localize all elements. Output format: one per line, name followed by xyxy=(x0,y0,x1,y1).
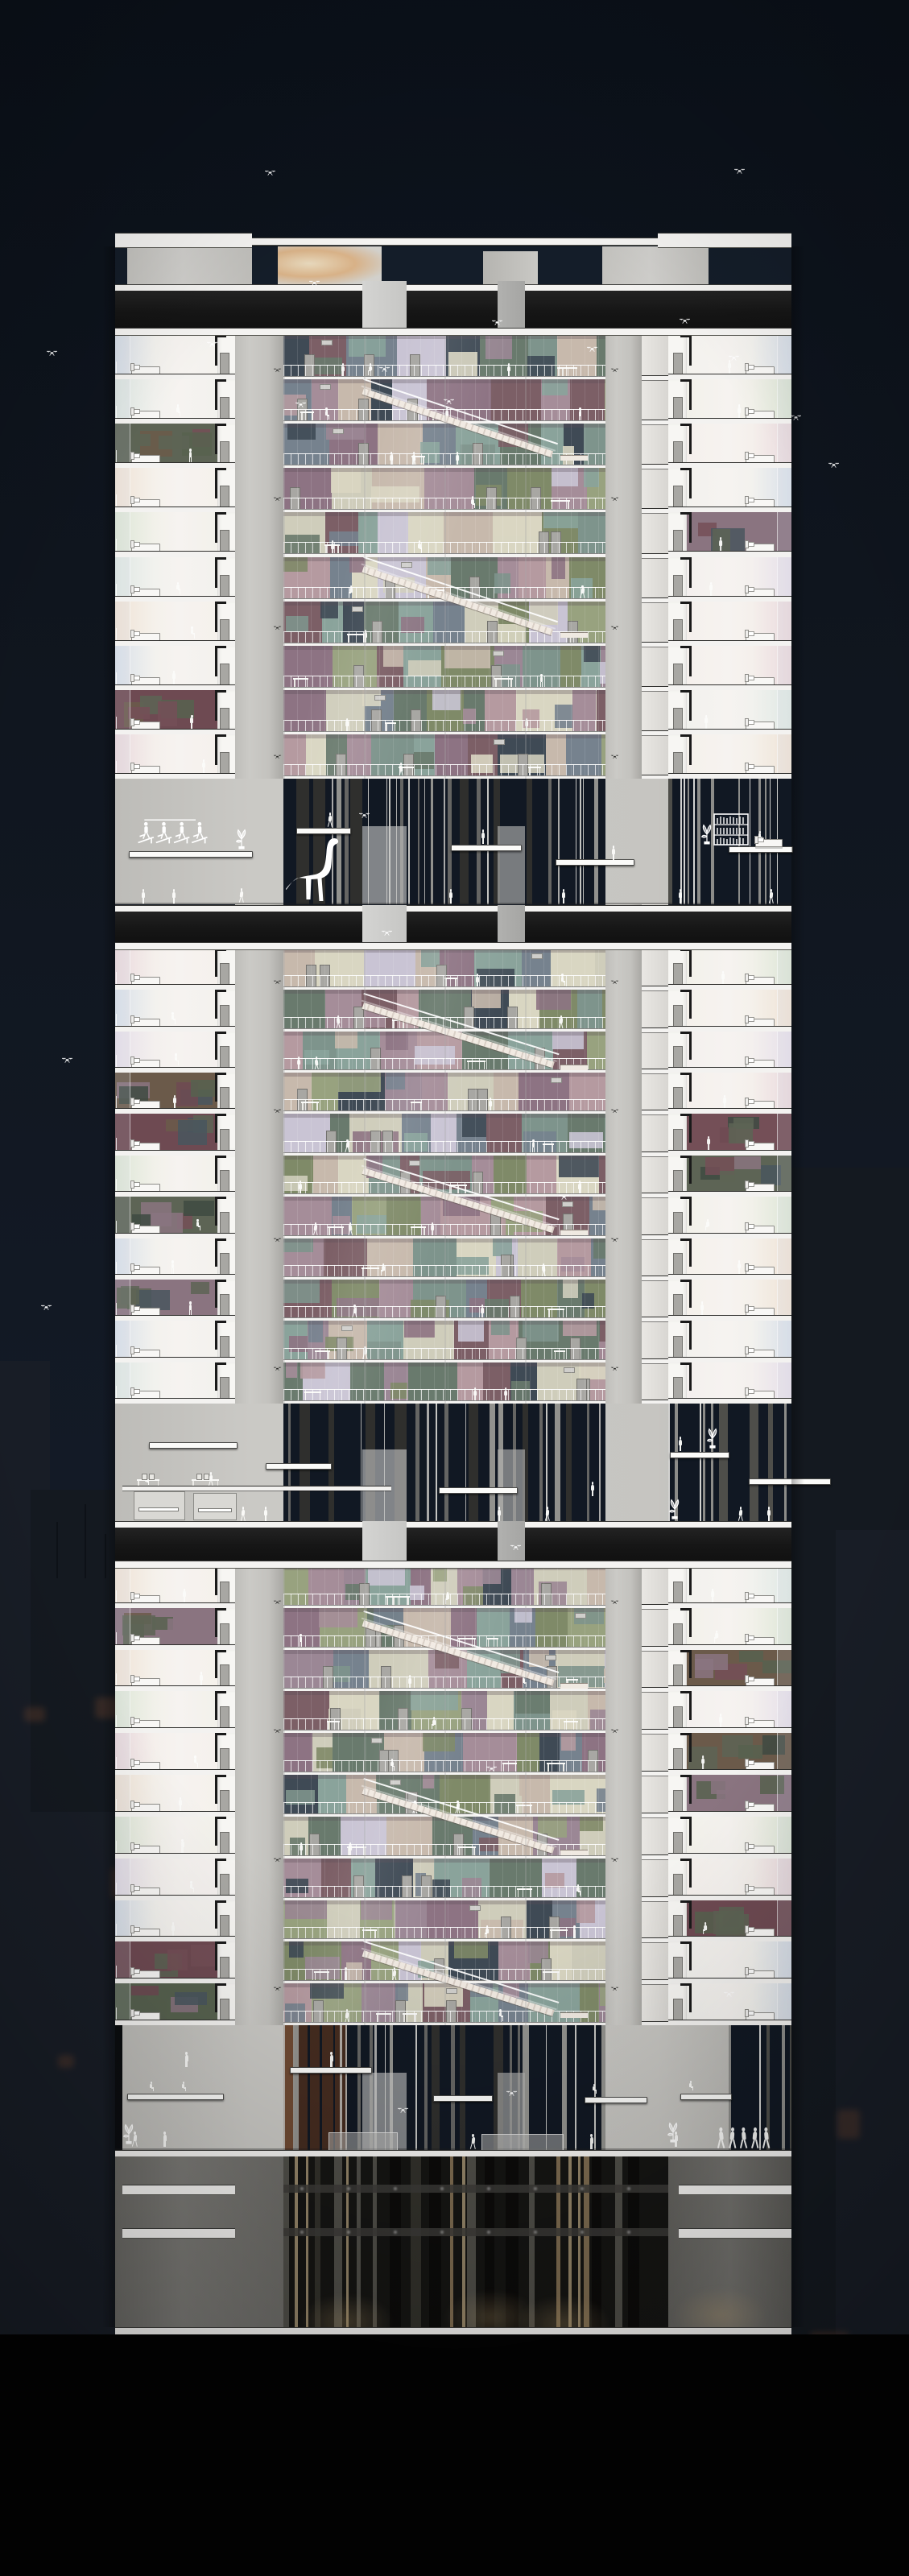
ceiling-strip xyxy=(283,1775,605,1779)
basement xyxy=(115,2156,791,2327)
mullion-stripe xyxy=(583,779,585,904)
section-cut-mark xyxy=(680,734,692,737)
mullion-stripe xyxy=(562,2025,567,2150)
ceiling-strip xyxy=(283,734,605,738)
drone-black-icon xyxy=(274,1725,281,1730)
mullion-stripe xyxy=(784,1404,787,1524)
closet-door xyxy=(220,1212,229,1234)
closet-door xyxy=(673,1623,683,1646)
beam-light xyxy=(581,2231,584,2234)
balcony-glass xyxy=(115,335,130,374)
basement-stub-slab xyxy=(679,2185,791,2195)
closet-door xyxy=(220,1253,229,1276)
left-wing xyxy=(115,335,235,779)
mullion-stripe xyxy=(418,779,419,904)
ac-unit xyxy=(551,1077,562,1083)
section-cut-mark xyxy=(215,1691,217,1720)
apartment-room xyxy=(115,949,235,990)
bed-headboard xyxy=(130,1592,134,1600)
person-figure-icon xyxy=(188,1881,193,1895)
drone-icon xyxy=(295,396,306,403)
bed-headboard xyxy=(745,452,749,460)
person-figure-icon xyxy=(727,360,732,374)
beam-light xyxy=(534,2187,537,2190)
closet-door xyxy=(220,441,229,464)
closet-door xyxy=(220,1748,229,1771)
room-interior xyxy=(686,557,791,596)
mechanical-band xyxy=(115,1528,791,1561)
atrium-level xyxy=(283,1280,605,1321)
balcony-railing-line xyxy=(283,2011,605,2023)
mullion-stripe xyxy=(340,2025,341,2150)
closet-door xyxy=(220,1129,229,1152)
person-leg xyxy=(193,1888,194,1892)
balcony-railing xyxy=(116,672,117,684)
mullion-stripe xyxy=(411,2156,421,2327)
section-cut-mark xyxy=(680,990,692,992)
closet-door xyxy=(673,1874,683,1896)
balcony-railing-line xyxy=(283,542,605,554)
person-leg xyxy=(204,767,205,773)
section-cut-mark xyxy=(215,1197,226,1199)
stair-landing xyxy=(560,455,588,461)
balcony-railing xyxy=(116,1386,117,1398)
tower-edge-shadow xyxy=(791,246,804,2327)
section-cut-mark xyxy=(215,1321,226,1323)
closet-door xyxy=(673,530,683,552)
closet-door xyxy=(673,1129,683,1152)
section-cut-mark xyxy=(689,1733,692,1762)
mullion-stripe xyxy=(337,779,341,904)
floor-slab xyxy=(668,2020,791,2025)
ceiling-strip xyxy=(283,690,605,694)
section-cut-mark xyxy=(215,1983,226,1986)
city-window-glow xyxy=(837,2110,860,2139)
person-leg xyxy=(739,1268,740,1274)
wall-panel xyxy=(695,1659,713,1677)
balcony-glass xyxy=(777,949,791,984)
section-cut-mark xyxy=(215,602,217,632)
section-cut-mark xyxy=(680,1733,692,1735)
person-leg xyxy=(711,589,712,595)
bed-headboard xyxy=(745,1387,749,1396)
balcony-railing xyxy=(116,406,117,418)
apartment-room xyxy=(668,1650,791,1692)
beam-light xyxy=(300,2231,304,2234)
section-cut-mark xyxy=(689,1775,692,1804)
balcony-glass xyxy=(115,602,130,640)
person-leg xyxy=(178,1061,179,1065)
balcony-railing-line xyxy=(283,1718,605,1730)
ceiling-strip xyxy=(283,1073,605,1077)
section-cut-mark xyxy=(689,1197,692,1225)
mullion-stripe xyxy=(431,779,433,904)
mullion-stripe xyxy=(415,1404,419,1524)
apartment-room xyxy=(668,424,791,468)
ac-unit xyxy=(446,1988,457,1994)
mullion-stripe xyxy=(451,2025,455,2150)
wall-panel xyxy=(131,1986,159,1996)
drone-icon xyxy=(729,349,739,356)
room-interior xyxy=(686,1321,791,1356)
balcony-railing-line xyxy=(283,1224,605,1236)
person-leg xyxy=(730,368,731,374)
balcony-glass xyxy=(777,1983,791,2020)
balcony-glass xyxy=(115,1238,130,1274)
bed-headboard xyxy=(130,674,134,682)
section-cut-mark xyxy=(215,1608,217,1637)
apartment-room xyxy=(668,1775,791,1817)
drone-black-icon xyxy=(274,1983,281,1987)
beam-light xyxy=(627,2231,630,2234)
mullion-stripe xyxy=(688,779,690,904)
person-figure-icon xyxy=(171,671,176,684)
balcony-glass xyxy=(777,1114,791,1149)
person-figure-icon xyxy=(714,1631,719,1644)
drone-icon xyxy=(207,336,217,342)
section-cut-mark xyxy=(689,1032,692,1060)
mechanical-band xyxy=(115,912,791,942)
balcony-railing xyxy=(116,1055,117,1067)
section-cut-mark xyxy=(680,1073,692,1075)
section-cut-mark xyxy=(215,1733,226,1735)
person-leg xyxy=(702,1309,703,1315)
balcony-railing xyxy=(116,1138,117,1150)
section-cut-mark xyxy=(215,646,226,648)
drone-black-icon xyxy=(611,1234,618,1238)
break-void xyxy=(283,2025,605,2150)
ceiling-strip xyxy=(283,1733,605,1737)
closet-door xyxy=(673,1336,683,1358)
bed-headboard xyxy=(130,1056,134,1065)
room-interior xyxy=(686,1691,791,1727)
closet-door xyxy=(220,752,229,775)
ceiling-strip xyxy=(283,1362,605,1367)
drone-icon xyxy=(734,163,745,169)
apartment-room xyxy=(668,512,791,556)
apartment-room xyxy=(668,1733,791,1775)
section-cut-mark xyxy=(215,1900,226,1903)
apartment-room xyxy=(668,1073,791,1114)
closet-door xyxy=(673,963,683,986)
break-void xyxy=(283,1404,605,1524)
person-figure-icon xyxy=(171,1260,176,1274)
bed-headboard xyxy=(130,452,134,460)
wall-panel xyxy=(184,1201,214,1216)
drone-icon xyxy=(47,345,57,351)
person-figure-icon xyxy=(710,1589,715,1602)
apartment-room xyxy=(115,602,235,646)
bed-headboard xyxy=(130,1717,134,1725)
bed-headboard xyxy=(130,1675,134,1683)
mullion-stripe xyxy=(668,779,672,904)
bed-headboard xyxy=(130,540,134,548)
section-cut-mark xyxy=(215,379,217,410)
closet-door xyxy=(220,1999,229,2021)
atrium-level xyxy=(283,1900,605,1942)
ceiling-strip xyxy=(283,468,605,472)
mullion-stripe xyxy=(429,2156,441,2327)
drone-black-icon xyxy=(611,976,618,981)
closet-door xyxy=(220,530,229,552)
mullion-stripe xyxy=(768,1404,772,1524)
bed-headboard xyxy=(745,630,749,638)
section-cut-mark xyxy=(215,1032,217,1060)
closet-door xyxy=(220,1170,229,1193)
right-wing xyxy=(668,335,791,779)
balcony-glass xyxy=(777,1197,791,1232)
mullion-stripe xyxy=(283,2025,285,2150)
balcony-glass xyxy=(777,1073,791,1108)
mullion-stripe xyxy=(527,779,533,904)
balcony-railing xyxy=(116,1632,117,1644)
beam-light xyxy=(534,2231,537,2234)
ac-unit xyxy=(390,1780,401,1785)
balcony-glass xyxy=(777,1941,791,1978)
person-leg xyxy=(706,723,707,729)
closet-door xyxy=(673,1170,683,1193)
apartment-room xyxy=(668,1197,791,1238)
mullion-stripe xyxy=(594,779,598,904)
mullion-stripe xyxy=(587,1404,589,1524)
balcony-glass xyxy=(115,1650,130,1686)
wall-panel xyxy=(175,1992,207,2005)
mullion-stripe xyxy=(777,779,778,904)
person-figure-icon xyxy=(201,759,206,773)
closet-door xyxy=(673,353,683,375)
closet-door xyxy=(673,1832,683,1854)
section-cut-mark xyxy=(689,1156,692,1184)
apartment-room xyxy=(115,1650,235,1692)
band-cap-slab xyxy=(115,942,791,950)
atrium-level xyxy=(283,1859,605,1900)
closet-door xyxy=(220,1377,229,1400)
basement-beam xyxy=(283,2228,668,2236)
beam-light xyxy=(440,2187,444,2190)
atrium-level xyxy=(283,1817,605,1859)
person-figure-icon xyxy=(704,715,709,729)
balcony-railing xyxy=(116,1673,117,1685)
mullion-stripe xyxy=(408,779,410,904)
closet-door xyxy=(673,1377,683,1400)
mullion-stripe xyxy=(539,1404,543,1524)
closet-door xyxy=(220,619,229,642)
beam-light xyxy=(394,2231,397,2234)
bed-headboard xyxy=(130,1967,134,1975)
person-leg xyxy=(709,1144,709,1150)
stair-landing xyxy=(560,1230,588,1235)
section-cut-mark xyxy=(215,990,217,1018)
section-cut-mark xyxy=(689,602,692,632)
balcony-glass xyxy=(777,379,791,418)
bed-headboard xyxy=(130,1346,134,1354)
mullion-stripe xyxy=(684,779,685,904)
ceiling-strip xyxy=(283,1691,605,1695)
section-cut-mark xyxy=(689,1114,692,1142)
closet-door xyxy=(673,397,683,420)
mullion-stripe xyxy=(766,2025,770,2150)
elevator-core-shaft xyxy=(362,1449,407,1524)
bed-headboard xyxy=(130,974,134,982)
mullion-stripe xyxy=(487,779,489,904)
section-cut-mark xyxy=(689,1650,692,1679)
ceiling-strip xyxy=(283,512,605,516)
apartment-room xyxy=(668,557,791,602)
bed-headboard xyxy=(130,585,134,593)
drone-black-icon xyxy=(611,622,618,626)
section-cut-mark xyxy=(680,1362,692,1365)
section-cut-mark xyxy=(215,557,217,588)
mullion-stripe xyxy=(759,2025,761,2150)
beam-light xyxy=(487,2187,490,2190)
balcony-glass xyxy=(115,1733,130,1769)
balcony-glass xyxy=(777,1321,791,1356)
mullion-stripe xyxy=(750,1404,758,1524)
ceiling-strip xyxy=(283,379,605,383)
apartment-room xyxy=(668,1900,791,1942)
balcony-glass xyxy=(115,990,130,1025)
person-leg xyxy=(180,1805,181,1811)
wall-panel xyxy=(158,701,177,726)
section-cut-mark xyxy=(689,734,692,765)
balcony-glass xyxy=(777,1238,791,1274)
atrium xyxy=(283,949,605,1404)
mullion-stripe xyxy=(477,779,480,904)
balcony-railing-line xyxy=(283,1594,605,1606)
balcony-railing-line xyxy=(283,1265,605,1277)
person-leg xyxy=(174,679,175,684)
section-cut-mark xyxy=(215,424,217,454)
section-cut-mark xyxy=(215,1362,217,1391)
room-interior xyxy=(686,602,791,640)
apartment-room xyxy=(115,1197,235,1238)
room-interior xyxy=(686,646,791,684)
ceiling-strip xyxy=(283,1280,605,1284)
person-leg xyxy=(713,1597,714,1602)
balcony-railing xyxy=(116,1096,117,1108)
closet-door xyxy=(220,1957,229,1979)
mullion-stripe xyxy=(345,779,349,904)
drone-black-icon xyxy=(611,493,618,498)
mosaic-panel xyxy=(286,616,308,632)
balcony-glass xyxy=(777,512,791,551)
bed-headboard xyxy=(745,1222,749,1230)
atrium-level xyxy=(283,690,605,734)
drone-black-icon xyxy=(274,750,281,755)
section-cut-mark xyxy=(215,1114,226,1116)
drone-icon xyxy=(359,807,370,813)
person-figure-icon xyxy=(700,1755,705,1769)
balcony-glass xyxy=(777,1032,791,1067)
section-cut-mark xyxy=(689,468,692,498)
lobby-edge-shadow xyxy=(115,2025,122,2150)
ceiling-strip xyxy=(283,557,605,561)
apartment-room xyxy=(668,734,791,779)
tower-edge-shadow xyxy=(102,246,115,2327)
person-figure-icon xyxy=(188,449,192,462)
apartment-room xyxy=(668,1321,791,1362)
balcony-glass xyxy=(777,1733,791,1769)
mullion-stripe xyxy=(357,2025,360,2150)
room-interior xyxy=(686,1362,791,1398)
balcony-glass xyxy=(777,1156,791,1191)
drone-black-icon xyxy=(611,1983,618,1987)
ac-unit xyxy=(564,1367,575,1373)
section-cut-mark xyxy=(215,1362,226,1365)
section-cut-mark xyxy=(680,1238,692,1241)
balcony-glass xyxy=(777,734,791,773)
balcony-glass xyxy=(777,1650,791,1686)
ceiling-strip xyxy=(283,1900,605,1904)
atrium-level xyxy=(283,602,605,646)
person-figure-icon xyxy=(199,1672,204,1685)
section-cut-mark xyxy=(680,1983,692,1986)
room-interior xyxy=(686,1817,791,1853)
ac-unit xyxy=(469,1905,481,1911)
mullion-stripe xyxy=(460,779,469,904)
person-head xyxy=(708,1136,710,1139)
balcony-glass xyxy=(777,1362,791,1398)
drone-black-icon xyxy=(611,1854,618,1859)
section-cut-mark xyxy=(215,949,217,977)
room-interior xyxy=(686,949,791,984)
balcony-glass xyxy=(777,1691,791,1727)
roof-parapet-cap xyxy=(658,233,791,248)
closet-door xyxy=(220,708,229,730)
mullion-stripe xyxy=(566,1404,572,1524)
section-cut-mark xyxy=(680,424,692,426)
section-cut-mark xyxy=(689,990,692,1018)
band-cap-slab xyxy=(115,328,791,336)
section-cut-mark xyxy=(689,1859,692,1888)
beam-light xyxy=(347,2231,350,2234)
timber-stripe xyxy=(310,2025,320,2150)
apartment-room xyxy=(668,1817,791,1859)
bed-headboard xyxy=(745,1180,749,1189)
drone-black-icon xyxy=(611,1725,618,1730)
closet-door xyxy=(673,1582,683,1604)
wall-panel xyxy=(738,1745,762,1758)
closet-door xyxy=(673,1957,683,1979)
balcony-glass xyxy=(777,646,791,684)
beam-light xyxy=(347,2187,350,2190)
person-head xyxy=(171,1260,174,1263)
mullion-stripe xyxy=(548,779,552,904)
balcony-railing-line xyxy=(283,975,605,987)
drone-black-icon xyxy=(611,364,618,369)
atrium-level xyxy=(283,1566,605,1608)
antenna xyxy=(56,1522,58,1578)
mullion-stripe xyxy=(575,2025,576,2150)
ceiling-strip xyxy=(283,1941,605,1945)
mullion-stripe xyxy=(432,2025,440,2150)
section-cut-mark xyxy=(680,1941,692,1944)
bed-headboard xyxy=(745,1759,749,1767)
person-figure-icon xyxy=(171,1922,176,1936)
drone-icon xyxy=(265,164,275,171)
apartment-room xyxy=(668,1114,791,1155)
drone-icon xyxy=(587,341,597,347)
apartment-room xyxy=(115,512,235,556)
apartment-room xyxy=(115,1817,235,1859)
stair-landing xyxy=(560,1850,588,1855)
apartment-room xyxy=(115,690,235,734)
section-cut-mark xyxy=(680,468,692,470)
section-cut-mark xyxy=(680,512,692,515)
drone-icon xyxy=(724,1986,734,1992)
balcony-glass xyxy=(115,1566,130,1602)
drone-icon xyxy=(680,312,690,319)
